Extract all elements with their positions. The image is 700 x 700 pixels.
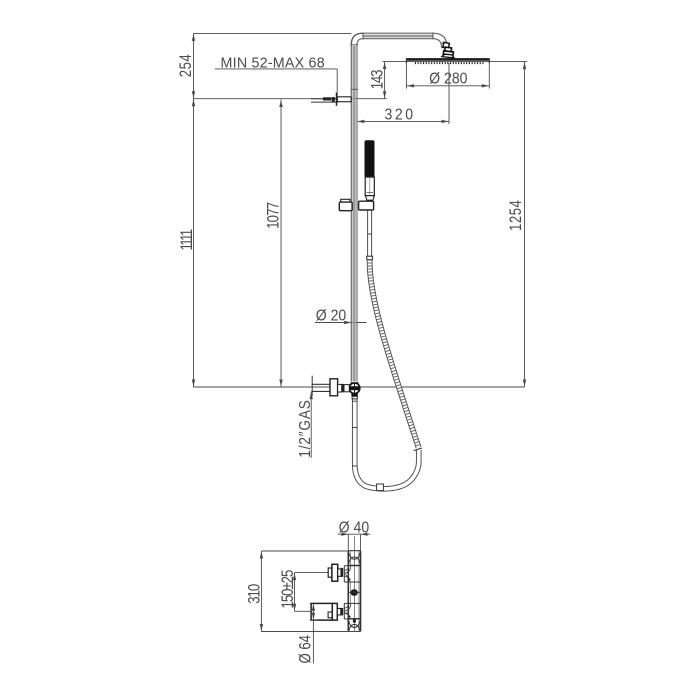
svg-text:143: 143 [368,70,387,89]
svg-text:Ø 280: Ø 280 [429,70,467,88]
svg-text:1/2″GAS: 1/2″GAS [297,399,314,457]
svg-text:1077: 1077 [264,202,283,229]
svg-text:1111: 1111 [178,229,197,250]
svg-text:320: 320 [384,106,415,124]
svg-text:1254: 1254 [507,200,526,231]
svg-text:254: 254 [177,54,196,77]
svg-text:310: 310 [245,584,264,604]
svg-text:Ø 64: Ø 64 [296,635,315,663]
svg-text:Ø 20: Ø 20 [316,306,347,324]
svg-text:150±25: 150±25 [279,570,298,608]
